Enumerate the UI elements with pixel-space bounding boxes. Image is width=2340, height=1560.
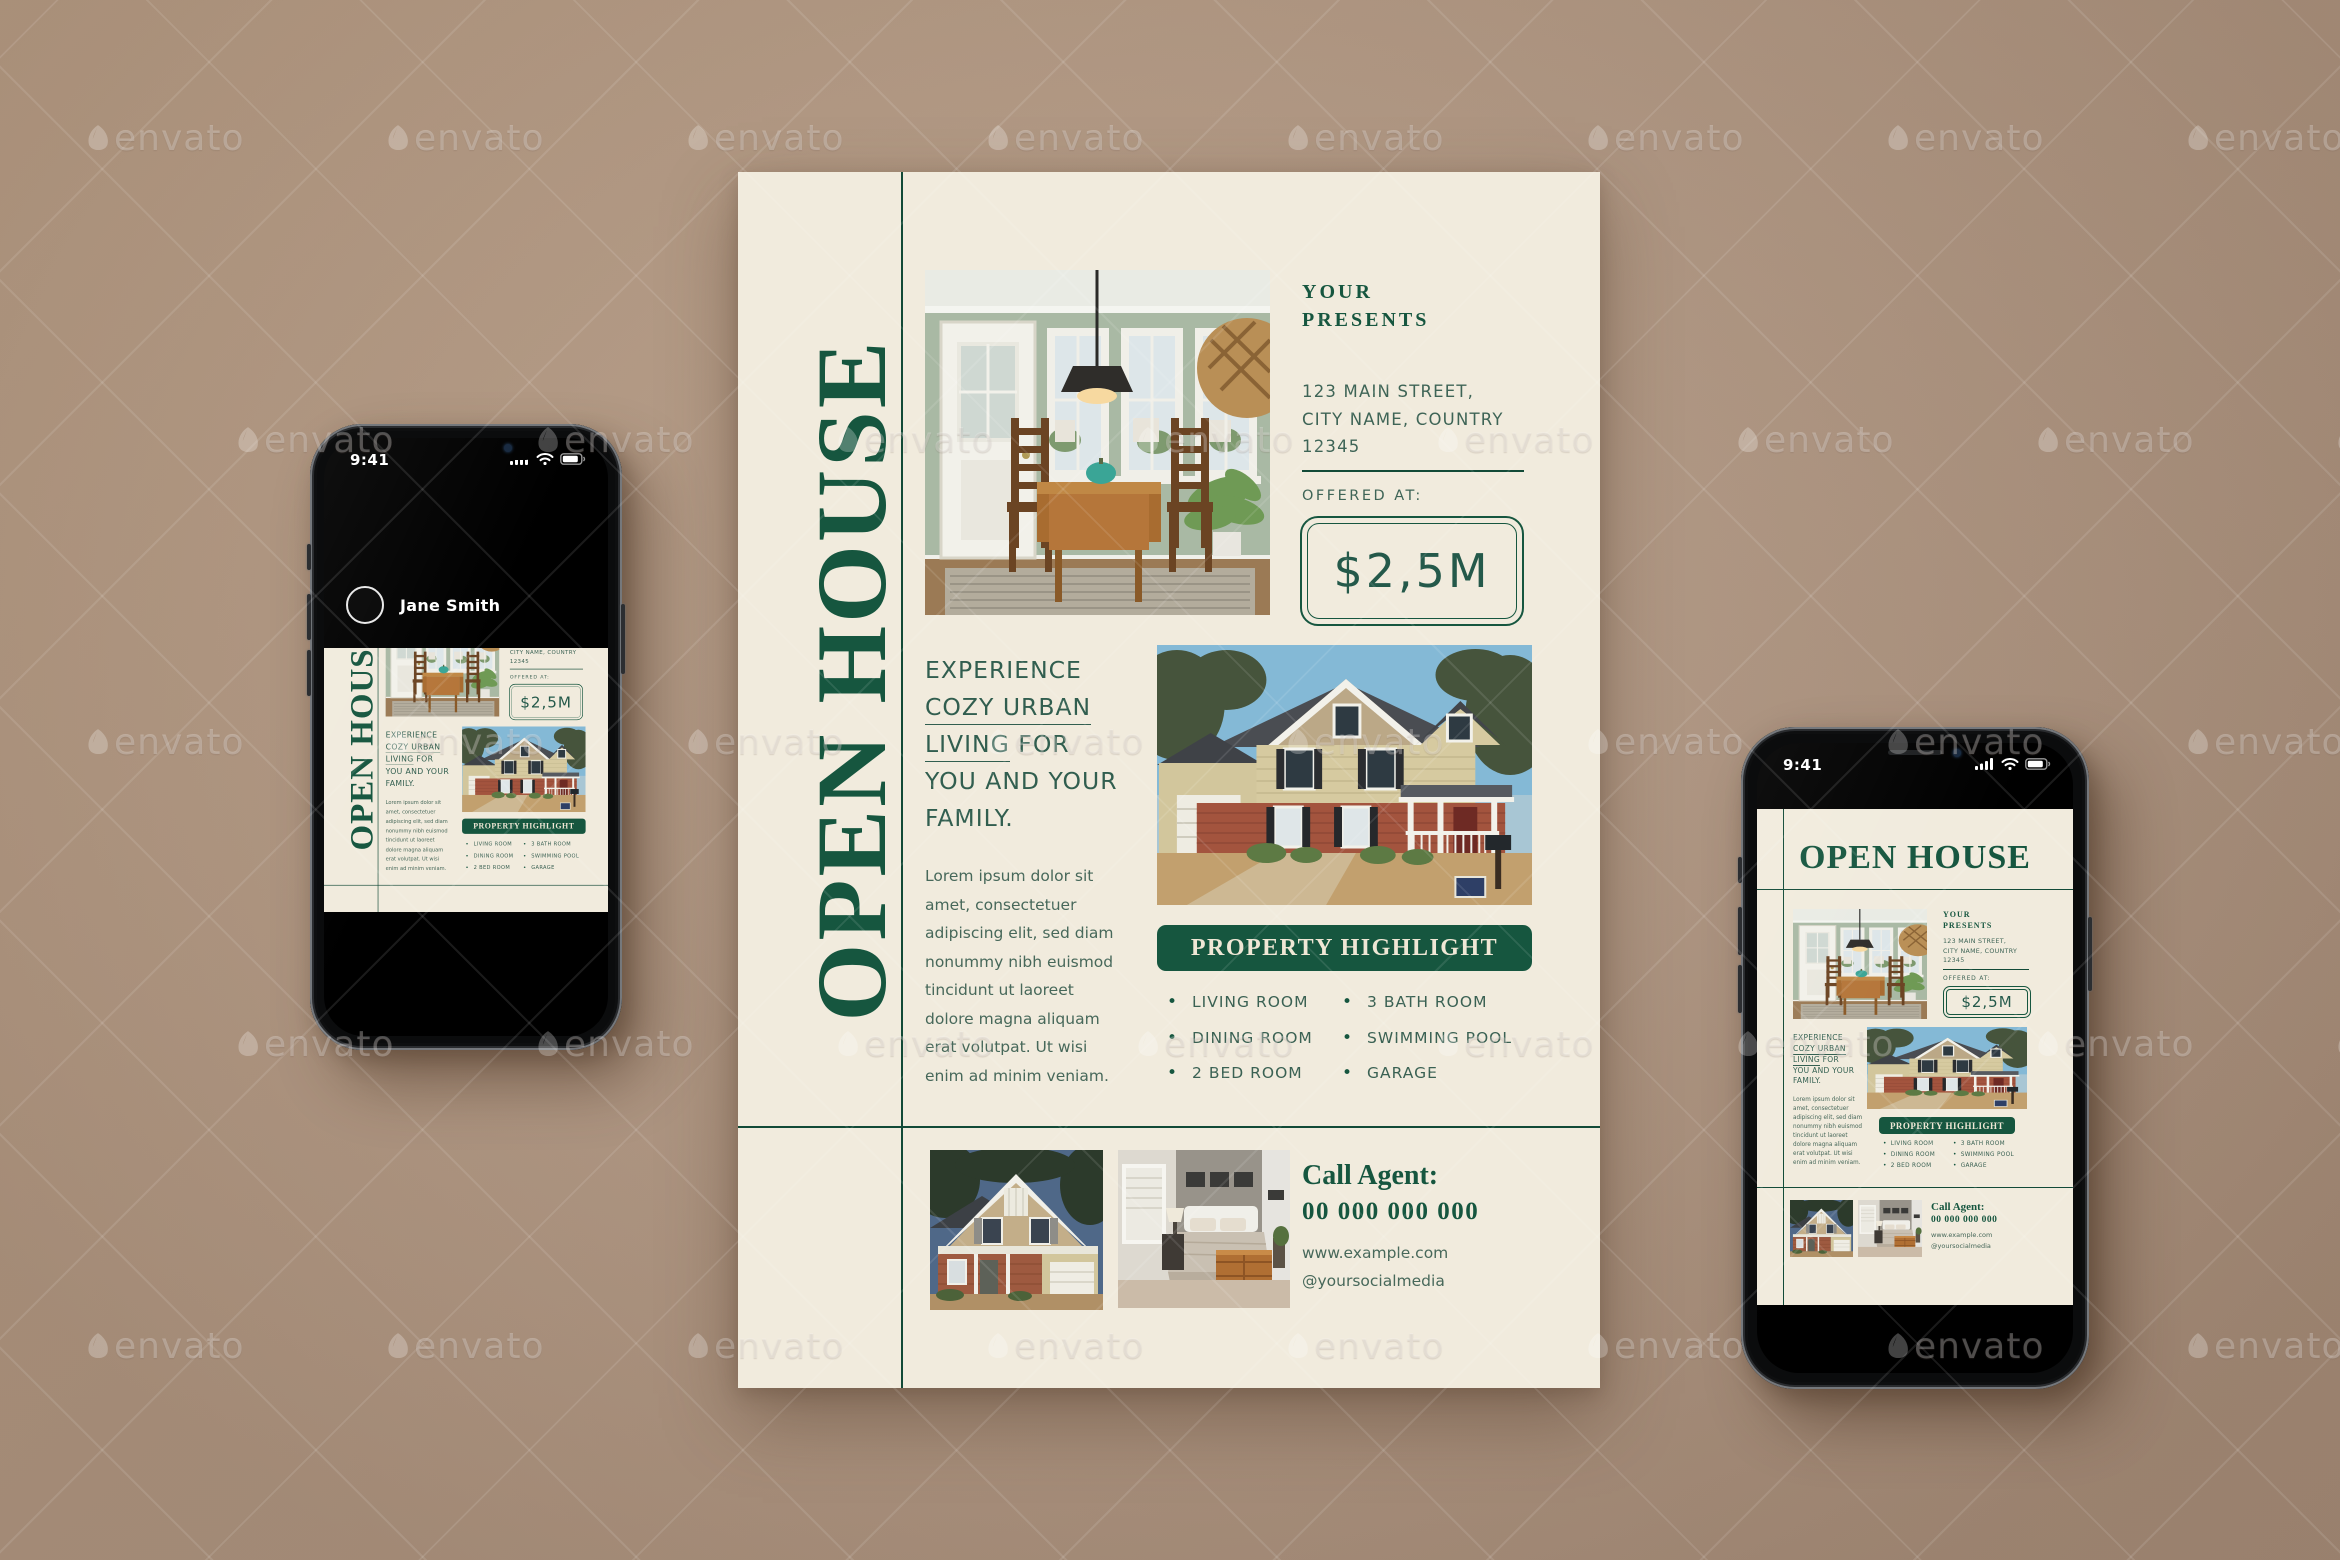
mockup-stage: OPEN HOUSE YOUR PRESENTS 123 MAIN STREET… <box>0 0 2340 1560</box>
battery-icon <box>2025 758 2051 770</box>
headline: EXPERIENCE COZY URBAN LIVING FOR YOU AND… <box>925 652 1118 837</box>
mute-switch <box>307 544 311 570</box>
price-box: $2,5M <box>1300 516 1524 626</box>
house-exterior-2-photo <box>930 1150 1103 1310</box>
envato-leaf-icon <box>2335 425 2340 457</box>
body-paragraph: Lorem ipsum dolor sit amet, consectetuer… <box>925 862 1121 1090</box>
envato-leaf-icon <box>85 1331 111 1363</box>
presenter-heading: YOUR PRESENTS <box>1302 278 1429 334</box>
envato-watermark: envato <box>985 118 1144 159</box>
phone-right: 9:41 OPEN HOUSE YOURPRESENTS 123 MAIN ST… <box>1741 727 2089 1389</box>
envato-watermark: envato <box>85 1326 244 1367</box>
envato-leaf-icon <box>2035 425 2061 457</box>
highlight-item: GARAGE <box>1342 1056 1512 1092</box>
envato-leaf-icon <box>685 123 711 155</box>
highlight-item: 2 BED ROOM <box>1167 1056 1313 1092</box>
flyer-vertical-rule <box>1783 809 1784 1305</box>
front-camera <box>504 444 512 452</box>
status-time: 9:41 <box>1783 756 1822 774</box>
address-divider <box>1302 470 1524 472</box>
envato-watermark: envato <box>385 1326 544 1367</box>
phone-left: 9:41 Jane Smith OPEN HOUSE YOURPRESEN <box>310 424 622 1050</box>
envato-leaf-icon <box>2335 1029 2340 1061</box>
dining-room-photo <box>386 648 500 717</box>
envato-watermark: envato <box>685 118 844 159</box>
envato-watermark: envato <box>2185 722 2340 763</box>
notch <box>392 438 540 460</box>
house-exterior-2-photo <box>1790 1200 1853 1257</box>
envato-leaf-icon <box>1885 123 1911 155</box>
flyer-horizontal-rule <box>738 1126 1600 1128</box>
presenter-line2: PRESENTS <box>1302 309 1429 331</box>
phone-right-screen: 9:41 OPEN HOUSE YOURPRESENTS 123 MAIN ST… <box>1757 743 2073 1373</box>
envato-leaf-icon <box>85 123 111 155</box>
envato-leaf-icon <box>235 425 261 457</box>
envato-watermark: envato <box>1585 1326 1744 1367</box>
price-value: $2,5M <box>1307 523 1517 619</box>
dining-room-photo <box>925 270 1270 615</box>
volume-down-button <box>307 650 311 696</box>
battery-icon <box>560 453 586 465</box>
profile-row: Jane Smith <box>346 586 500 624</box>
price-box: $2,5M <box>1943 986 2031 1018</box>
notch <box>1841 743 1989 765</box>
flyer-title-vertical: OPEN HOUSE <box>797 265 907 1095</box>
envato-leaf-icon <box>2185 727 2211 759</box>
envato-leaf-icon <box>2185 123 2211 155</box>
envato-leaf-icon <box>385 1331 411 1363</box>
bedroom-photo <box>1858 1200 1922 1257</box>
highlight-item: 3 BATH ROOM <box>1342 985 1512 1021</box>
agent-phone-number: 00 000 000 000 <box>1302 1198 1479 1226</box>
agent-block: Call Agent: 00 000 000 000 www.example.c… <box>1302 1160 1479 1290</box>
agent-social-handle: @yoursocialmedia <box>1302 1272 1479 1290</box>
speaker-slit <box>1888 750 1942 755</box>
envato-watermark: envato <box>2185 118 2340 159</box>
envato-leaf-icon <box>2185 1331 2211 1363</box>
flyer-main: OPEN HOUSE YOUR PRESENTS 123 MAIN STREET… <box>738 172 1600 1388</box>
envato-leaf-icon <box>1735 425 1761 457</box>
envato-watermark: envato <box>85 118 244 159</box>
property-highlight-banner: PROPERTY HIGHLIGHT <box>1157 925 1532 971</box>
envato-watermark: envato <box>85 722 244 763</box>
mute-switch <box>1738 857 1742 883</box>
envato-leaf-icon <box>385 123 411 155</box>
bedroom-photo <box>1118 1150 1290 1308</box>
flyer-copy: OPEN HOUSE YOURPRESENTS 123 MAIN STREET,… <box>324 648 608 912</box>
profile-name: Jane Smith <box>400 596 500 615</box>
house-exterior-photo <box>462 726 586 812</box>
envato-leaf-icon <box>685 1331 711 1363</box>
volume-down-button <box>1738 965 1742 1013</box>
wifi-icon <box>2001 758 2019 770</box>
envato-watermark: envato <box>1585 722 1744 763</box>
property-address: 123 MAIN STREET, CITY NAME, COUNTRY 1234… <box>1302 378 1504 461</box>
flyer-post-image: OPEN HOUSE YOURPRESENTS 123 MAIN STREET,… <box>324 648 608 912</box>
flyer-horizontal-rule <box>1757 1187 2073 1188</box>
envato-watermark: envato <box>1285 118 1444 159</box>
offered-at-label: OFFERED AT: <box>1302 488 1423 504</box>
volume-up-button <box>1738 907 1742 955</box>
highlight-item: DINING ROOM <box>1167 1021 1313 1057</box>
envato-watermark: envato <box>1885 118 2044 159</box>
envato-watermark: envato <box>1735 420 1894 461</box>
dining-room-photo <box>1793 909 1927 1019</box>
avatar <box>346 586 384 624</box>
title-underline-rule <box>1757 889 2073 890</box>
front-camera <box>1953 749 1961 757</box>
envato-watermark: envato <box>2185 1326 2340 1367</box>
highlight-item: LIVING ROOM <box>1167 985 1313 1021</box>
envato-watermark: envato <box>2335 420 2340 461</box>
envato-watermark: envato <box>2335 1024 2340 1065</box>
highlight-list-col2: 3 BATH ROOM SWIMMING POOL GARAGE <box>1342 985 1512 1092</box>
envato-watermark: envato <box>385 118 544 159</box>
house-exterior-photo <box>1867 1027 2027 1109</box>
envato-leaf-icon <box>1285 123 1311 155</box>
envato-leaf-icon <box>85 727 111 759</box>
envato-leaf-icon <box>1585 123 1611 155</box>
phone-left-screen: 9:41 Jane Smith OPEN HOUSE YOURPRESEN <box>324 438 608 1036</box>
highlight-item: SWIMMING POOL <box>1342 1021 1512 1057</box>
agent-website: www.example.com <box>1302 1244 1479 1262</box>
envato-leaf-icon <box>235 1029 261 1061</box>
wifi-icon <box>536 453 554 465</box>
volume-up-button <box>307 594 311 640</box>
presenter-line1: YOUR <box>1302 281 1373 303</box>
call-agent-label: Call Agent: <box>1302 1160 1479 1192</box>
agent-block: Call Agent: 00 000 000 000 www.example.c… <box>1931 1201 1997 1250</box>
flyer-title: OPEN HOUSE <box>1793 839 2037 877</box>
status-time: 9:41 <box>350 451 389 469</box>
power-button <box>2088 917 2092 991</box>
power-button <box>621 604 625 674</box>
flyer-mobile: OPEN HOUSE YOURPRESENTS 123 MAIN STREET,… <box>1757 809 2073 1305</box>
house-exterior-photo <box>1157 645 1532 905</box>
envato-leaf-icon <box>685 727 711 759</box>
envato-leaf-icon <box>985 123 1011 155</box>
envato-watermark: envato <box>1585 118 1744 159</box>
highlight-list-col1: LIVING ROOM DINING ROOM 2 BED ROOM <box>1167 985 1313 1092</box>
envato-watermark: envato <box>2035 420 2194 461</box>
